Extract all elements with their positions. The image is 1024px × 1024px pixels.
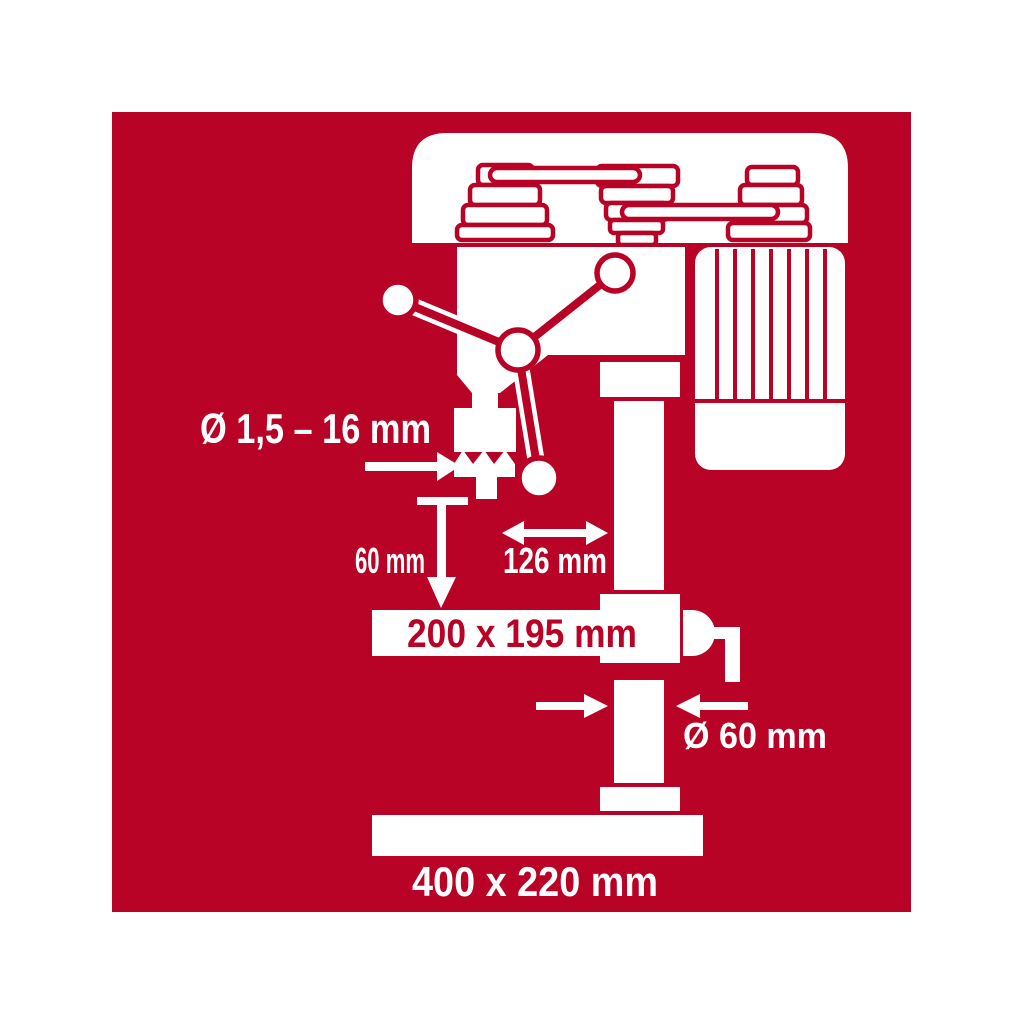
pulley-tier <box>601 186 673 203</box>
label-throat-depth: 126 mm <box>503 540 607 581</box>
pulley-tier <box>747 167 798 185</box>
label-base-size: 400 x 220 mm <box>412 858 658 905</box>
stroke-dim-line <box>437 505 446 579</box>
label-spindle-stroke: 60 mm <box>355 540 425 581</box>
pulley-tier <box>740 185 802 205</box>
pulley-tier <box>463 205 547 225</box>
column-dim-right-shaft <box>700 702 748 710</box>
stroke-dim-top-bar <box>417 497 468 505</box>
column-lower <box>614 680 664 783</box>
drive-belt-bottom <box>622 205 778 219</box>
chuck-pointer-arrow-shaft <box>365 462 437 471</box>
drive-belt-top <box>490 168 640 182</box>
drill-press-dimension-diagram: Ø 1,5 – 16 mm 60 mm 126 mm 200 x 195 mm … <box>0 0 1024 1024</box>
label-table-size: 200 x 195 mm <box>407 612 637 656</box>
label-column-diameter: Ø 60 mm <box>683 715 827 756</box>
drill-chuck <box>454 408 516 452</box>
chuck-jaws-zigzag <box>454 450 515 477</box>
pulley-tier <box>618 233 656 245</box>
pulley-tier <box>470 185 540 205</box>
column-dim-left-shaft <box>536 702 584 710</box>
label-chuck-capacity: Ø 1,5 – 16 mm <box>200 405 431 452</box>
feed-handle-knob-right <box>597 255 633 291</box>
motor <box>695 247 845 470</box>
feed-handle-knob-bottom <box>519 458 559 498</box>
head-column-collar <box>600 362 680 397</box>
spindle <box>472 392 498 409</box>
feed-handle-knob-left <box>380 282 416 318</box>
belt-cover-assembly <box>412 133 848 245</box>
pulley-tier <box>457 225 553 240</box>
machine-base <box>372 815 703 856</box>
drill-bit <box>476 477 497 499</box>
throat-dim-shaft <box>524 529 586 537</box>
base-collar <box>600 787 680 811</box>
pulley-tier <box>728 223 810 240</box>
feed-handle-hub <box>498 330 538 370</box>
column-upper <box>614 401 664 590</box>
